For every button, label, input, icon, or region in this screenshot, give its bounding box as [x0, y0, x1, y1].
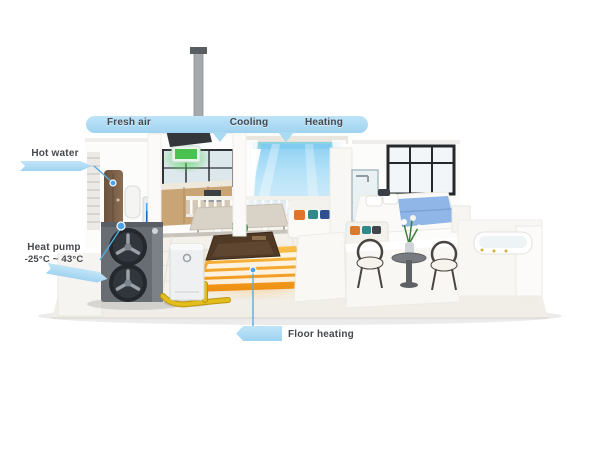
hydro-unit	[170, 244, 204, 300]
label-floor-heating: Floor heating	[288, 329, 378, 340]
label-heat-pump-range: -25°C ~ 43°C	[10, 254, 98, 265]
scene: Fresh air Cooling Heating Hot water Heat…	[0, 0, 600, 450]
floor-heating-banner	[236, 326, 282, 341]
label-cooling: Cooling	[220, 117, 278, 128]
fresh-air-unit	[175, 149, 197, 159]
terrace	[458, 220, 542, 296]
bathtub	[474, 232, 532, 254]
ribbon-arrow-down-1	[212, 132, 228, 142]
bedroom-window	[388, 146, 454, 194]
heat-pump-unit	[101, 222, 163, 302]
label-hot-water: Hot water	[18, 148, 92, 159]
label-heat-pump: Heat pump	[10, 242, 98, 253]
label-fresh-air: Fresh air	[96, 117, 162, 128]
softener-tank	[125, 186, 140, 218]
hot-water-arrow	[20, 161, 92, 171]
ribbon-arrow-down-2	[278, 132, 294, 142]
house-illustration	[0, 0, 600, 450]
label-heating: Heating	[292, 117, 356, 128]
